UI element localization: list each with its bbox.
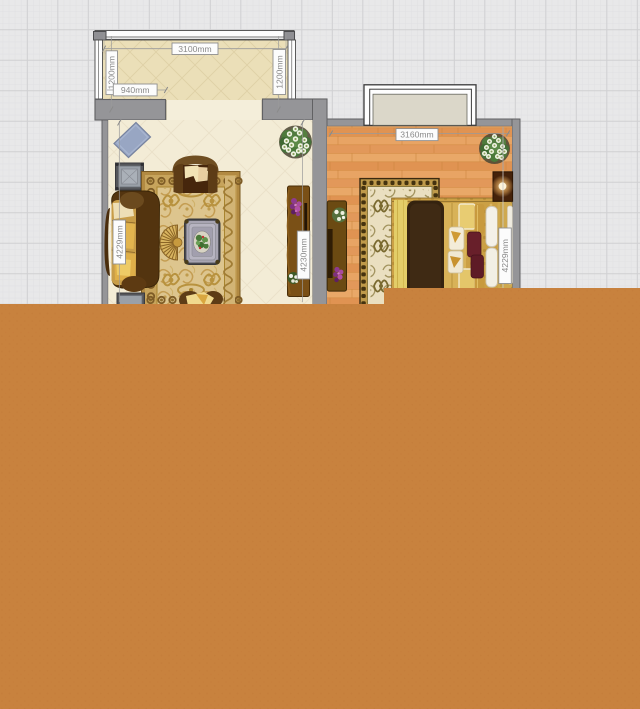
svg-text:4229mm: 4229mm: [500, 239, 510, 272]
svg-text:3100mm: 3100mm: [178, 44, 211, 54]
svg-text:4230mm: 4230mm: [299, 238, 309, 271]
svg-text:3160mm: 3160mm: [400, 130, 433, 140]
svg-text:940mm: 940mm: [121, 85, 150, 95]
svg-text:1200mm: 1200mm: [274, 55, 284, 88]
svg-text:4229mm: 4229mm: [114, 225, 124, 258]
